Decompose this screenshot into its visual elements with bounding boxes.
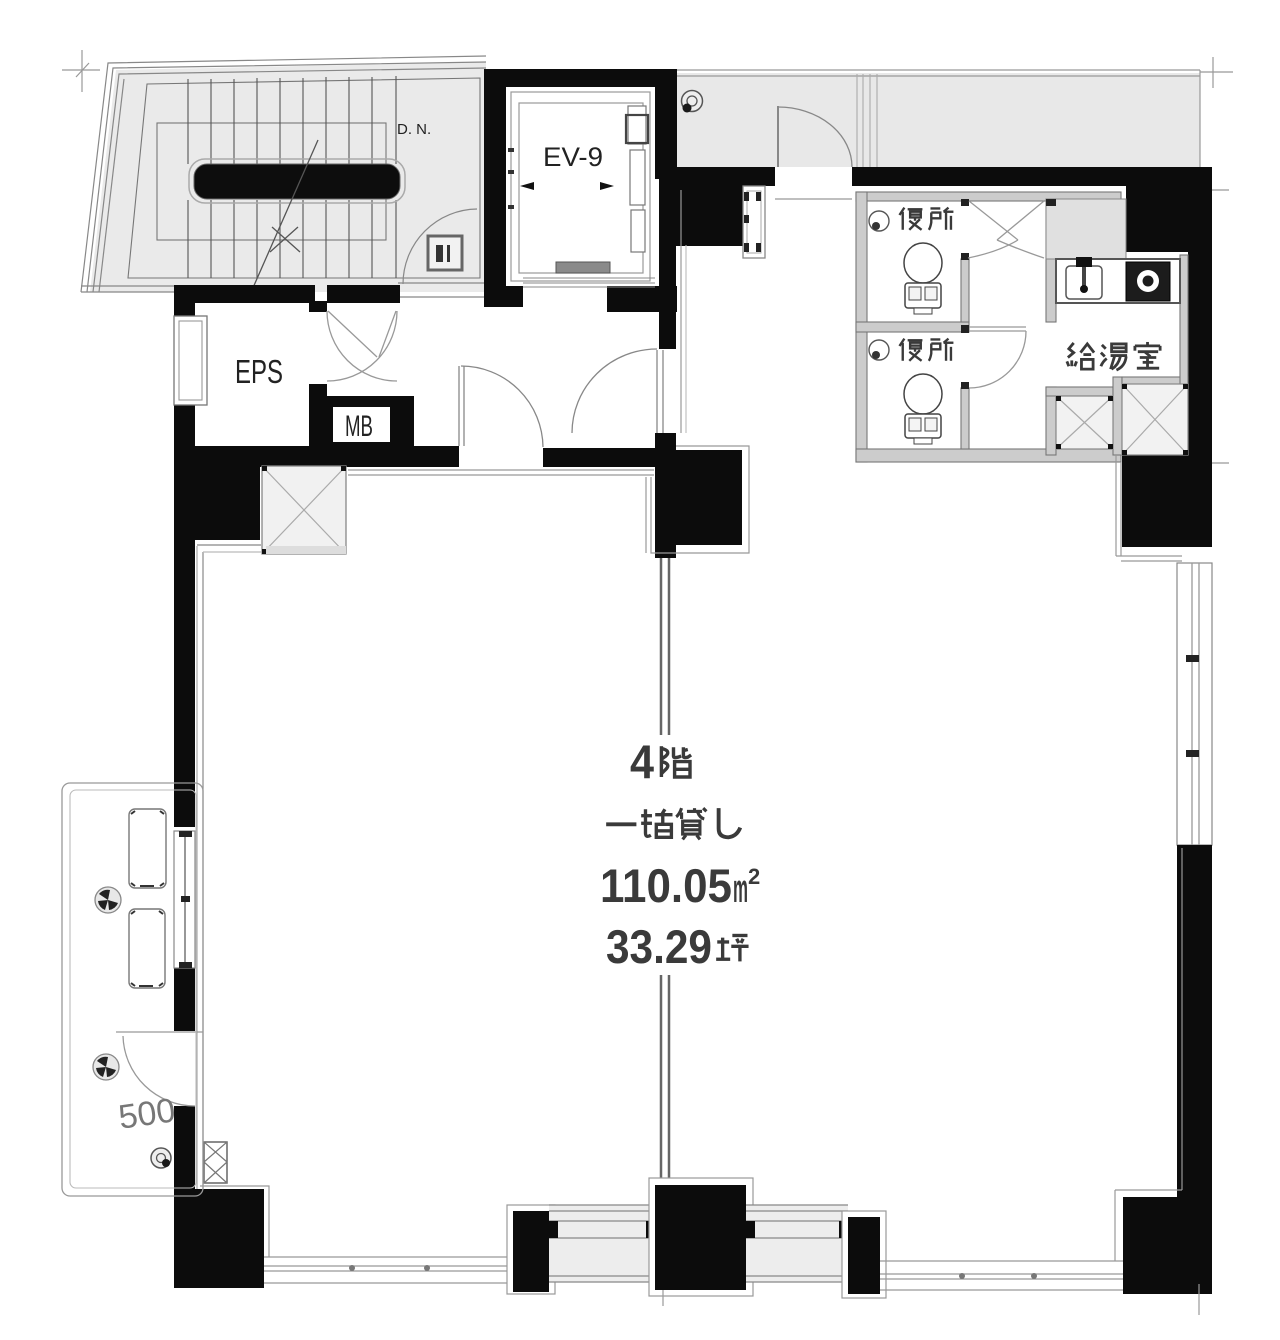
svg-text:EPS: EPS [235,353,283,390]
svg-text:EV-9: EV-9 [543,142,603,172]
svg-text:D. N.: D. N. [397,121,431,138]
svg-text:2: 2 [748,864,760,889]
svg-text:33.29: 33.29 [606,920,712,973]
svg-text:MB: MB [345,410,373,443]
svg-text:110.05: 110.05 [600,859,732,912]
svg-text:m: m [733,867,748,911]
svg-text:500: 500 [116,1091,177,1137]
svg-text:4: 4 [630,735,654,788]
